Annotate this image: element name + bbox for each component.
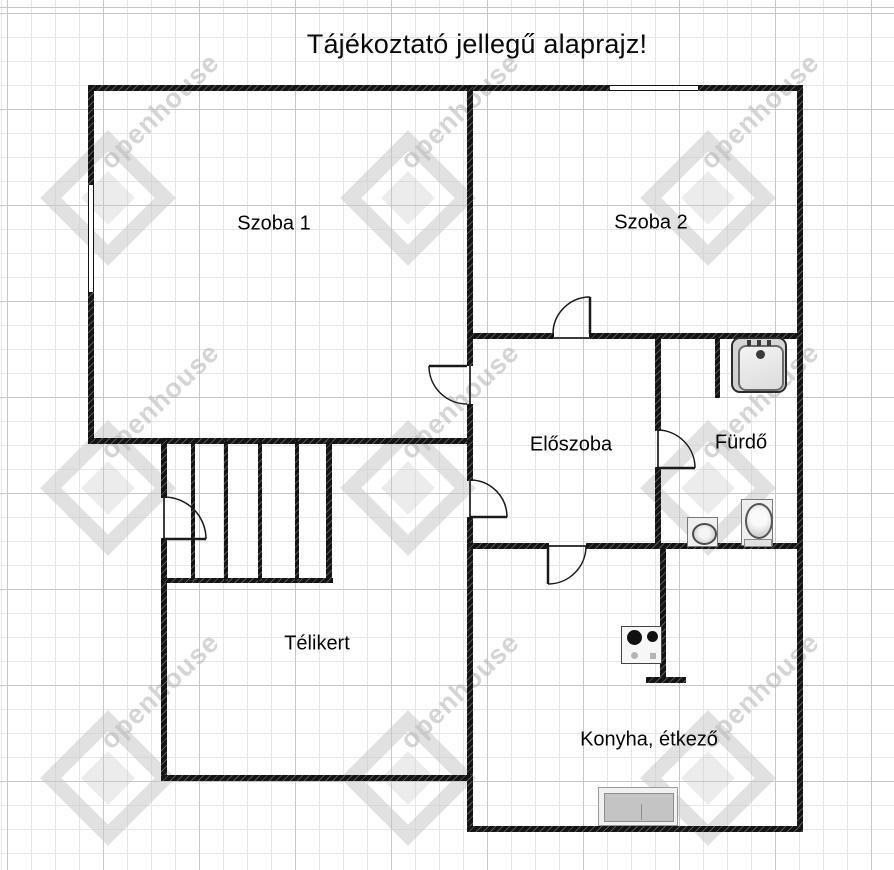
stove-icon (621, 626, 662, 664)
floor-plan: openhouse openhouse openhouse openhouse … (0, 0, 894, 870)
wall-exterior-right (797, 85, 803, 832)
wall-telikert-left (161, 538, 167, 781)
toilet-icon (741, 499, 773, 546)
stair-step (295, 441, 299, 581)
door-arc-furdo (657, 430, 695, 468)
room-label-szoba1: Szoba 1 (237, 213, 310, 236)
room-label-furdo: Fürdő (715, 432, 767, 455)
door-threshold (553, 337, 590, 339)
openhouse-logo-icon (340, 130, 476, 266)
door-threshold (163, 498, 165, 538)
room-label-eloszoba: Előszoba (530, 434, 612, 457)
watermark-text: openhouse (94, 47, 225, 175)
door-arc-szoba1 (429, 366, 467, 404)
door-threshold (469, 480, 471, 517)
room-label-konyha: Konyha, étkező (580, 729, 718, 752)
toilet-bowl (745, 503, 773, 539)
wall-konyha-top (467, 543, 549, 549)
stairs-bottom-wall (161, 578, 333, 583)
window-szoba2 (610, 85, 698, 91)
stove-burner-small (647, 631, 658, 642)
door-threshold (657, 431, 659, 467)
room-label-szoba2: Szoba 2 (614, 212, 687, 235)
watermark-text: openhouse (94, 627, 225, 755)
shower-icon (731, 337, 787, 393)
openhouse-logo-icon (40, 130, 176, 266)
counter-basin (604, 793, 674, 822)
wall-furdo-left (655, 333, 661, 431)
watermark-text: openhouse (94, 337, 225, 465)
window-szoba1 (88, 185, 94, 292)
watermark: openhouse (60, 45, 300, 285)
watermark-text: openhouse (394, 627, 525, 755)
faucet-tick (747, 340, 751, 346)
wall-szoba2-bottom (467, 333, 554, 339)
watermark: openhouse (660, 45, 894, 285)
wall-szoba1-bottom (88, 438, 473, 444)
wall-shower-stub (715, 338, 720, 398)
wall-peninsula-cap (646, 677, 686, 683)
wall-divider-vertical (467, 517, 473, 832)
watermark: openhouse (60, 625, 300, 865)
room-label-telikert: Télikert (284, 633, 350, 656)
wall-konyha-bottom (467, 826, 803, 832)
wall-stairs-left (161, 438, 167, 498)
watermark-text: openhouse (694, 47, 825, 175)
toilet-tank (744, 539, 772, 547)
door-threshold (469, 366, 471, 404)
watermark-text: openhouse (394, 337, 525, 465)
openhouse-logo-icon (40, 710, 176, 846)
wall-divider-vertical (467, 85, 473, 366)
stair-step (224, 441, 228, 581)
wall-divider-vertical (467, 404, 473, 481)
washbasin-bowl (692, 523, 717, 545)
door-arc-eloszoba (470, 480, 507, 517)
watermark: openhouse (360, 45, 600, 285)
plan-title: Tájékoztató jellegű alaprajz! (30, 29, 894, 60)
stove-burner-large (627, 630, 642, 645)
door-arc-entrance (164, 497, 206, 539)
door-arc-szoba2 (553, 297, 590, 334)
stair-step (191, 441, 195, 581)
stove-knob (631, 652, 638, 659)
washbasin-icon (687, 517, 718, 547)
stair-step (258, 441, 262, 581)
door-arc-konyha (548, 546, 586, 584)
wall-telikert-bottom (161, 775, 473, 781)
faucet-tick (767, 340, 771, 346)
counter-divider (641, 804, 642, 820)
shower-drain (756, 350, 765, 359)
door-threshold (549, 545, 586, 547)
stove-knob (650, 653, 656, 659)
stair-step (326, 441, 332, 581)
openhouse-logo-icon (640, 130, 776, 266)
faucet-tick (757, 340, 761, 346)
kitchen-counter-sink-icon (598, 787, 678, 826)
watermark-text: openhouse (394, 47, 525, 175)
watermark: openhouse (60, 335, 300, 575)
wall-furdo-left (655, 467, 661, 549)
